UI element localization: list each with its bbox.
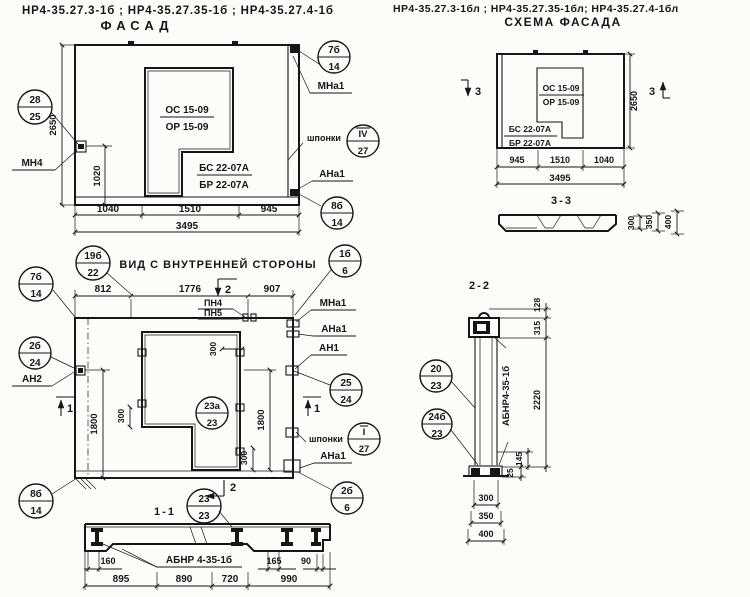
- dim: 400: [478, 529, 493, 539]
- schema-drawing: ОС 15-09 ОР 15-09 БС 22-07А БР 22-07А 3 …: [461, 50, 670, 188]
- lifting-loop-icon: [583, 50, 588, 54]
- callout-bottom: 27: [359, 444, 370, 455]
- panel-mark: БС 22-07А: [199, 163, 249, 174]
- callout-top: 7б: [328, 44, 340, 56]
- rib-channel: [281, 528, 293, 546]
- drawing-canvas: НР4-35.27.3-1б ; НР4-35.27.35-1б ; НР4-3…: [0, 0, 750, 597]
- dim: 315: [532, 321, 542, 335]
- label-mna1: МНа1: [320, 298, 347, 309]
- section-1-1-title: 1-1: [154, 506, 176, 518]
- dim: 25: [505, 468, 515, 478]
- section-2-2: 2-2 АБНР4-35-1б 128 315 2220 145 25 300 …: [420, 280, 551, 545]
- callout-bottom: 22: [87, 268, 99, 279]
- callout-top: 24б: [428, 411, 445, 423]
- section-1-1: 1-1 23 23 АБНР 4-35-1б 160 165 90 895 89…: [84, 489, 336, 590]
- label-an1: АН1: [319, 343, 339, 354]
- callout-top: 25: [340, 378, 352, 389]
- callout-top: 2б: [29, 340, 41, 352]
- label-ana1: АНа1: [319, 169, 345, 180]
- dim-1800: 1800: [256, 409, 267, 430]
- dim: 945: [261, 204, 278, 215]
- dim-anchor: 1020: [92, 165, 103, 186]
- callout-top: 20: [430, 364, 442, 375]
- callout-top: IV: [359, 129, 369, 140]
- label-pn4: ПН4: [204, 298, 222, 308]
- dim: 350: [478, 511, 493, 521]
- lifting-loop-icon: [232, 41, 238, 45]
- callout-top: 7б: [30, 271, 42, 283]
- dim-height: 2650: [48, 114, 59, 135]
- section-2-2-title: 2-2: [469, 280, 491, 292]
- fasad-title: ФАСАД: [100, 18, 173, 33]
- dim: 145: [514, 452, 524, 466]
- dim: 128: [532, 298, 542, 312]
- label-shponki: шпонки: [309, 434, 343, 444]
- section-mark-2: 2: [230, 482, 236, 494]
- dim-300: 300: [208, 342, 218, 356]
- callout-bottom: 23: [430, 381, 442, 392]
- dim: 400: [663, 215, 673, 229]
- rib-channel: [311, 528, 321, 546]
- section-profile: [499, 215, 616, 231]
- window-mark: ОР 15-09: [543, 97, 580, 107]
- callout-top: 19б: [84, 250, 101, 262]
- section-mark-2: 2: [225, 284, 231, 296]
- label-abnr: АБНР 4-35-1б: [166, 554, 232, 566]
- dim: 1510: [550, 155, 570, 165]
- window-mark: ОС 15-09: [543, 83, 580, 93]
- dim: 160: [100, 556, 115, 566]
- inner-view-title: ВИД С ВНУТРЕННЕЙ СТОРОНЫ: [119, 258, 316, 271]
- section-profile: [85, 524, 330, 551]
- dim-total: 3495: [549, 173, 571, 184]
- callout-bottom: 23: [198, 511, 210, 522]
- label-mna1: МНа1: [318, 81, 345, 92]
- inner-panel-outline: [75, 318, 293, 478]
- label-an2: АН2: [22, 374, 42, 385]
- dim: 300: [478, 493, 493, 503]
- callout-top: 23: [198, 494, 210, 505]
- callout-bottom: 14: [30, 289, 42, 300]
- drawing-sheet: НР4-35.27.3-1б ; НР4-35.27.35-1б ; НР4-3…: [0, 0, 750, 597]
- section-mark-3: 3: [475, 86, 481, 98]
- callout-bottom: 24: [340, 395, 352, 406]
- section-mark-1: 1: [67, 403, 73, 415]
- callout-bottom: 6: [342, 266, 348, 277]
- callout-top: 2б: [341, 485, 353, 497]
- inner-window-opening: [142, 332, 240, 470]
- dim: 1776: [179, 284, 202, 295]
- callout-bottom: 23: [431, 429, 443, 440]
- dim: 890: [176, 574, 193, 585]
- label-pn5: ПН5: [204, 308, 222, 318]
- callout-bottom: 24: [29, 358, 41, 369]
- dim: 720: [222, 574, 239, 585]
- dim: 990: [281, 574, 298, 585]
- callout-top: 8б: [331, 200, 343, 212]
- panel-mark: БС 22-07А: [509, 124, 551, 134]
- dim: 1510: [179, 204, 202, 215]
- callout-bottom: 14: [30, 506, 42, 517]
- dim: 895: [113, 574, 130, 585]
- dim: 812: [95, 284, 112, 295]
- callout-top: 23а: [204, 401, 221, 412]
- dim-300: 300: [116, 409, 126, 423]
- callout-bottom: 23: [207, 418, 218, 429]
- schema-title: СХЕМА ФАСАДА: [504, 15, 621, 29]
- lifting-loop-icon: [533, 50, 538, 54]
- dim: 2220: [532, 390, 542, 410]
- callout-top: 28: [29, 95, 41, 106]
- dim: 350: [644, 215, 654, 229]
- label-ana1: АНа1: [321, 324, 347, 335]
- section-mark-1: 1: [314, 403, 320, 415]
- label-mn4: МН4: [21, 158, 43, 169]
- section-3-3: 3-3 300 350 400: [499, 195, 684, 234]
- callout-bottom: 27: [358, 146, 369, 157]
- dim: 1040: [594, 155, 614, 165]
- dim-height: 2650: [629, 91, 639, 111]
- label-ana1: АНа1: [320, 451, 346, 462]
- fasad-drawing: ОС 15-09 ОР 15-09 БС 22-07А БР 22-07А 26…: [12, 41, 379, 236]
- header-codes-right: НР4-35.27.3-1бл ; НР4-35.27.35-1бл; НР4-…: [393, 3, 679, 15]
- dim: 907: [264, 284, 281, 295]
- inner-view-drawing: ВИД С ВНУТРЕННЕЙ СТОРОНЫ 19б 22 812 1776…: [12, 245, 380, 518]
- dim: 1040: [97, 204, 120, 215]
- dim-total: 3495: [176, 221, 199, 232]
- panel-mark: БР 22-07А: [509, 138, 551, 148]
- dim: 165: [266, 556, 281, 566]
- window-mark: ОР 15-09: [166, 122, 209, 133]
- callout-bottom: 6: [344, 503, 350, 514]
- label-shponki: шпонки: [307, 133, 341, 143]
- window-mark: ОС 15-09: [165, 105, 209, 116]
- section-3-3-title: 3-3: [551, 195, 573, 207]
- callout-top: I: [363, 427, 366, 438]
- callout-bottom: 14: [331, 218, 343, 229]
- callout-bottom: 14: [328, 62, 340, 73]
- label-abnr: АБНР4-35-1б: [501, 366, 512, 426]
- dim: 90: [301, 556, 311, 566]
- callout-top: 1б: [339, 248, 351, 260]
- callout-top: 8б: [30, 488, 42, 500]
- rib-channel: [231, 528, 243, 546]
- dim: 300: [626, 216, 636, 230]
- lifting-loop-icon: [128, 41, 134, 45]
- header-codes-left: НР4-35.27.3-1б ; НР4-35.27.35-1б ; НР4-3…: [22, 5, 334, 17]
- dim: 945: [509, 155, 524, 165]
- panel-mark: БР 22-07А: [199, 180, 248, 191]
- rib-channel: [91, 528, 103, 546]
- section-mark-3: 3: [649, 86, 655, 98]
- callout-bottom: 25: [29, 112, 41, 123]
- dim-300: 300: [239, 451, 249, 465]
- dim-1800: 1800: [89, 413, 100, 434]
